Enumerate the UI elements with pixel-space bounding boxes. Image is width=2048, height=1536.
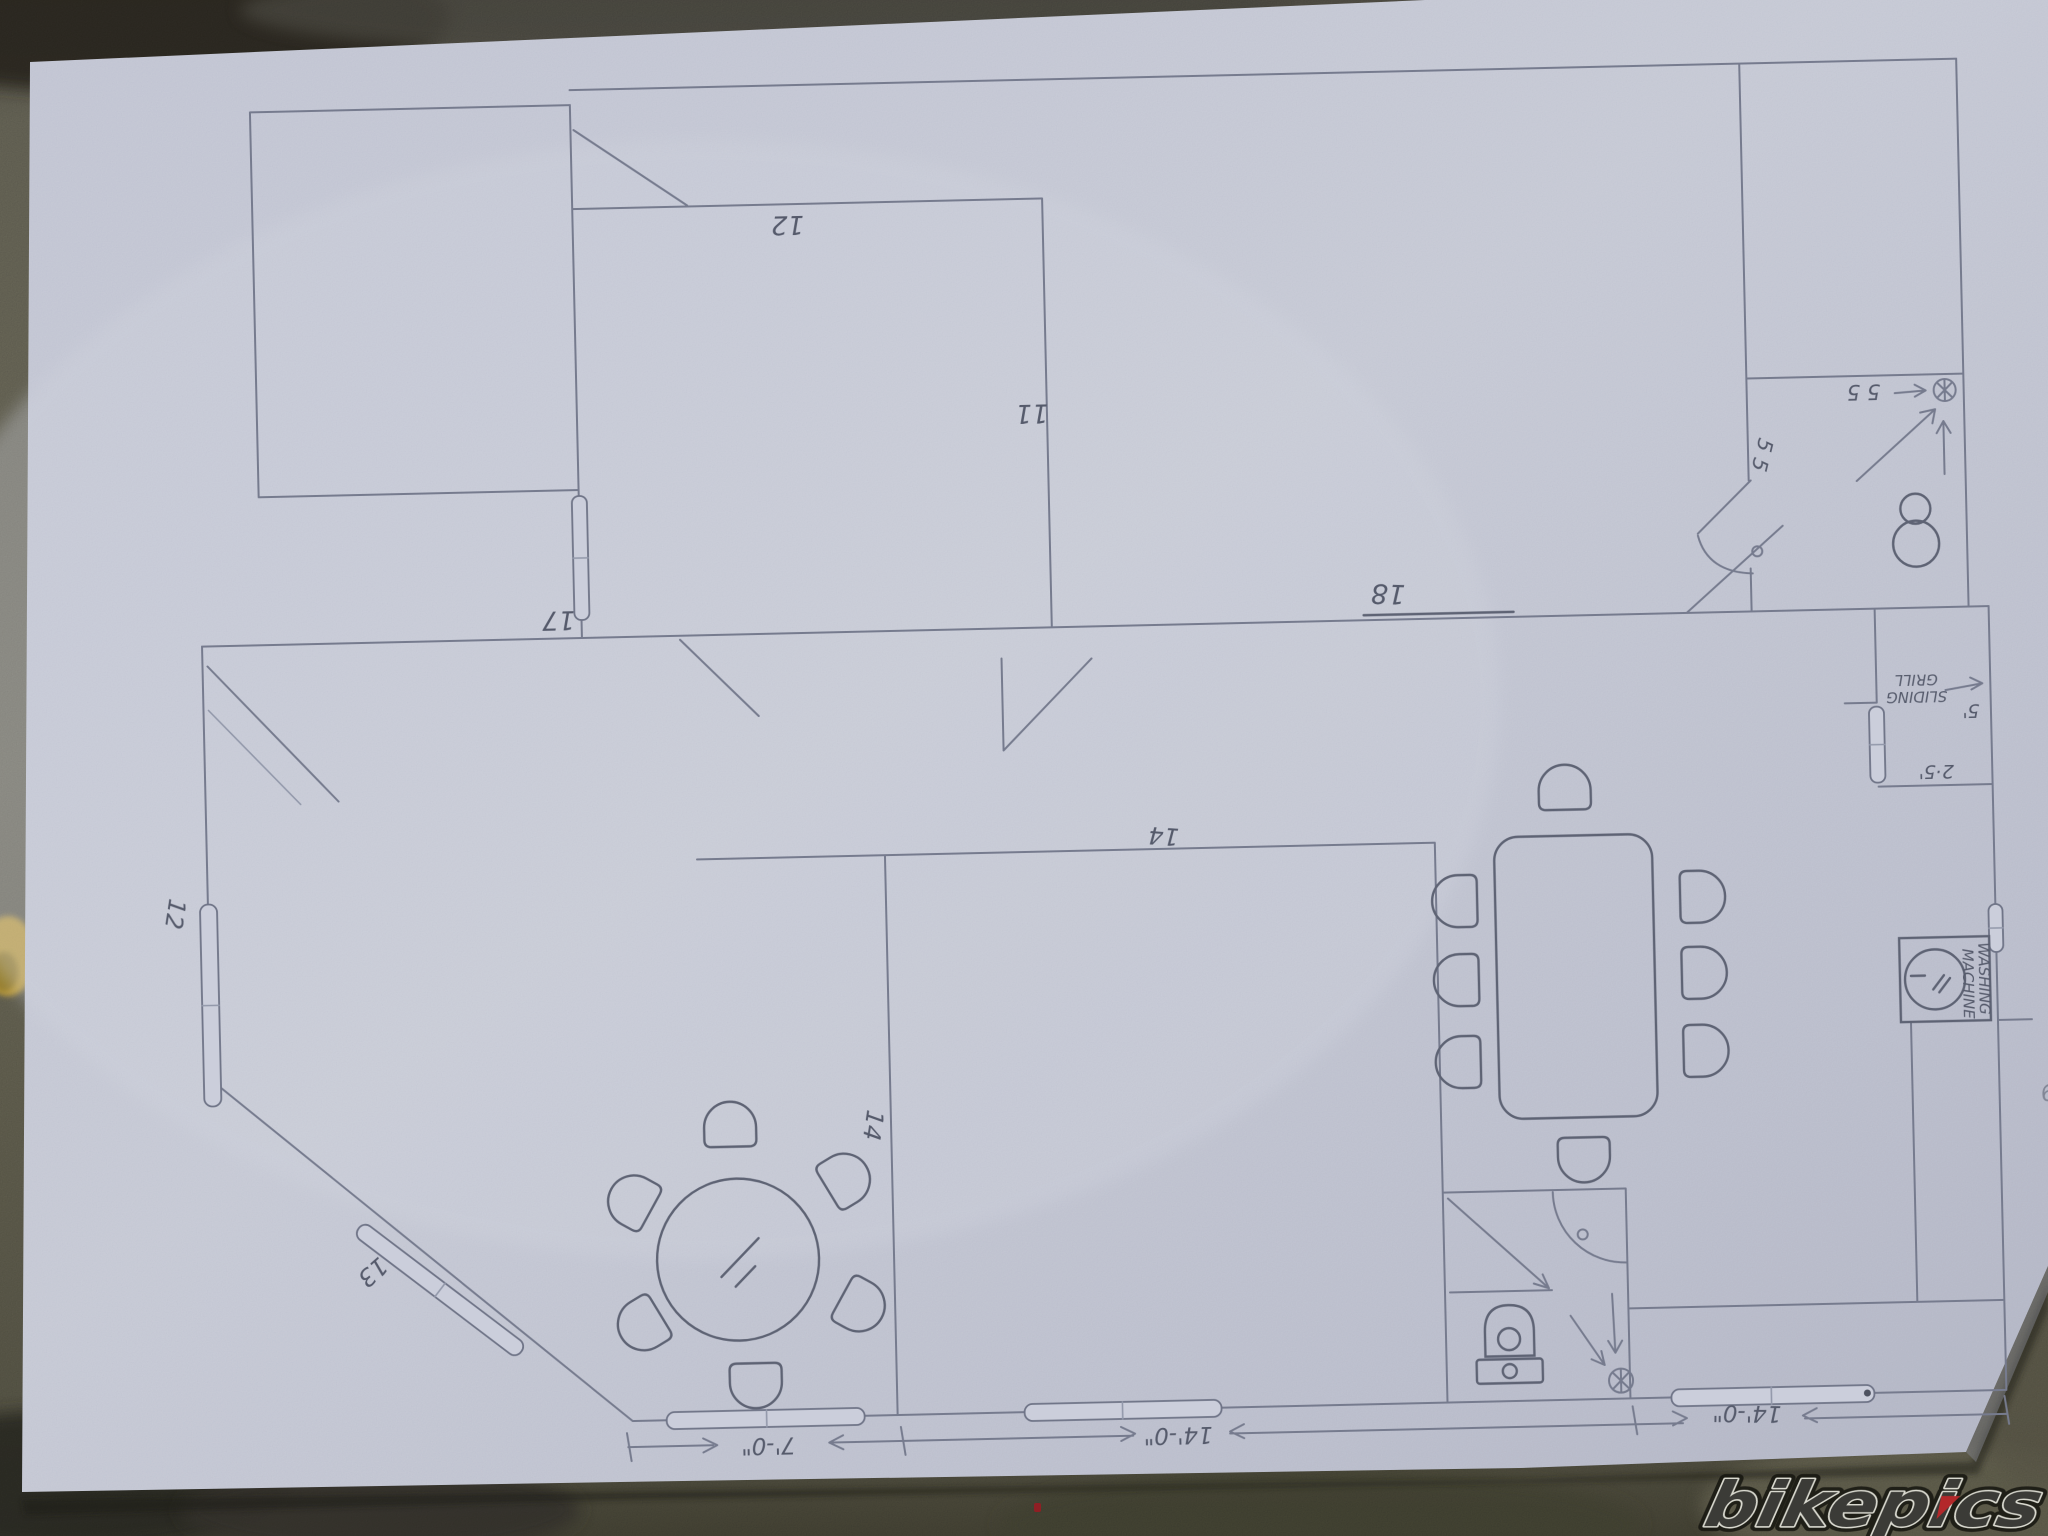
room-label-14: 14 xyxy=(857,1108,889,1142)
window-bottom-2 xyxy=(1024,1400,1221,1421)
bath-dim-h: 5 5 xyxy=(1847,379,1881,404)
dimension-label-right: 14'-0" xyxy=(1712,1399,1781,1426)
red-speck xyxy=(1034,1503,1041,1512)
dimension-label-left: 7'-0" xyxy=(741,1431,796,1458)
photo-canvas: 12 11 18 17 12 13 14 14 5 5 5 5 5' 2·5' … xyxy=(0,0,2048,1536)
watermark: bikepics bikepics xyxy=(1699,1469,2048,1536)
room-label-11: 11 xyxy=(1015,397,1049,428)
watermark-text: bikepics xyxy=(1699,1469,2048,1536)
photo-scene: 12 11 18 17 12 13 14 14 5 5 5 5 5' 2·5' … xyxy=(0,0,2048,1536)
room-label-14b: 14 xyxy=(1148,821,1180,851)
window-grill-recess xyxy=(1869,706,1886,782)
sliding-grill-label-2: GRILL xyxy=(1894,670,1938,689)
sliding-grill-label-1: SLIDING xyxy=(1886,687,1948,706)
window-bottom-1 xyxy=(667,1408,865,1429)
washing-machine-label-2: MACHINE xyxy=(1958,948,1978,1019)
dimension-label-middle: 14'-0" xyxy=(1143,1421,1213,1449)
room-label-17: 17 xyxy=(541,604,575,635)
window-left xyxy=(200,904,222,1106)
recess-depth-label: 2·5' xyxy=(1918,760,1954,783)
grill-height-label: 5' xyxy=(1962,699,1980,721)
window-mid-vertical xyxy=(572,496,590,620)
room-label-12: 12 xyxy=(771,209,805,240)
window-label-12: 12 xyxy=(159,897,191,931)
room-label-18: 18 xyxy=(1371,577,1406,609)
